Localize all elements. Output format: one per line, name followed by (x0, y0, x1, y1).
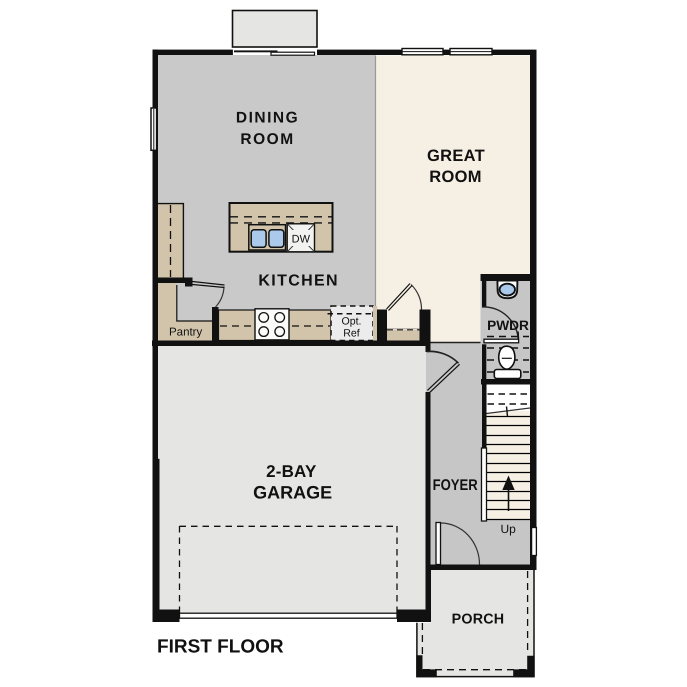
svg-text:Ref: Ref (343, 327, 360, 339)
svg-text:DW: DW (292, 234, 311, 246)
svg-text:Up: Up (501, 522, 517, 536)
svg-text:ROOM: ROOM (240, 131, 294, 148)
svg-text:FOYER: FOYER (433, 477, 478, 494)
svg-text:GARAGE: GARAGE (253, 483, 332, 503)
svg-text:Opt.: Opt. (341, 315, 361, 327)
svg-text:FIRST FLOOR: FIRST FLOOR (157, 636, 284, 657)
svg-text:Pantry: Pantry (169, 327, 202, 339)
svg-text:ROOM: ROOM (429, 168, 482, 186)
svg-text:GREAT: GREAT (427, 147, 485, 165)
svg-text:PORCH: PORCH (452, 611, 505, 627)
svg-text:2-BAY: 2-BAY (266, 462, 317, 481)
svg-text:PWDR: PWDR (487, 318, 529, 333)
svg-text:KITCHEN: KITCHEN (258, 272, 339, 289)
svg-text:DINING: DINING (236, 110, 299, 127)
